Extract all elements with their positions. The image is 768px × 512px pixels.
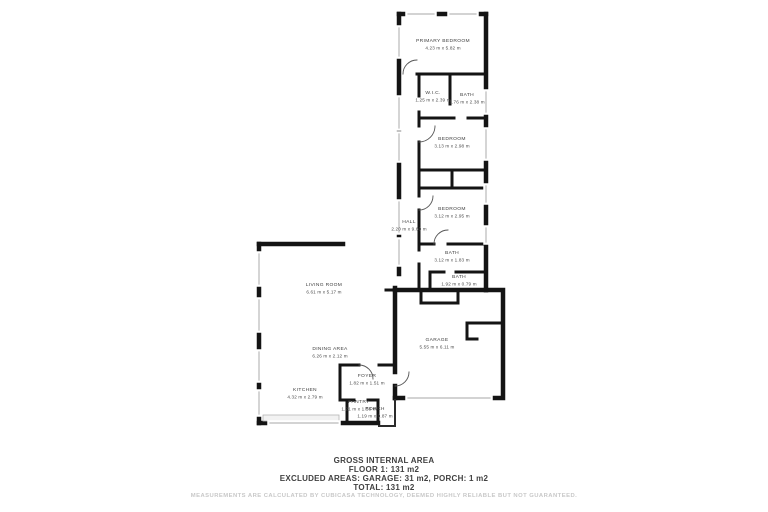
room-dims: 1.19 m x 0.87 m: [357, 413, 392, 420]
room-name: BATH: [449, 92, 484, 99]
room-label-bedroom-2: BEDROOM 3.12 m x 2.95 m: [434, 206, 469, 220]
room-name: BATH: [441, 274, 476, 281]
floorplan-canvas: PRIMARY BEDROOM 4.23 m x 5.82 m W.I.C. 1…: [0, 0, 768, 512]
room-label-living-room: LIVING ROOM 6.61 m x 5.17 m: [306, 282, 342, 296]
room-label-bath-small: BATH 1.92 m x 0.79 m: [441, 274, 476, 288]
room-label-hall: HALL 2.20 m x 9.60 m: [391, 219, 426, 233]
room-name: BEDROOM: [434, 206, 469, 213]
room-label-bath-upper: BATH 1.76 m x 2.38 m: [449, 92, 484, 106]
room-label-porch: PORCH 1.19 m x 0.87 m: [357, 406, 392, 420]
room-name: HALL: [391, 219, 426, 226]
room-name: PRIMARY BEDROOM: [416, 38, 470, 45]
room-dims: 3.12 m x 1.83 m: [434, 257, 469, 264]
room-label-bedroom-1: BEDROOM 3.13 m x 2.98 m: [434, 136, 469, 150]
room-name: KITCHEN: [287, 387, 322, 394]
room-dims: 1.76 m x 2.38 m: [449, 99, 484, 106]
room-label-garage: GARAGE 5.55 m x 6.11 m: [419, 337, 454, 351]
room-label-foyer: FOYER 1.82 m x 1.51 m: [349, 373, 384, 387]
room-name: BATH: [434, 250, 469, 257]
room-name: PORCH: [357, 406, 392, 413]
room-name: LIVING ROOM: [306, 282, 342, 289]
room-dims: 6.26 m x 2.12 m: [312, 353, 347, 360]
room-dims: 1.25 m x 2.39 m: [415, 97, 450, 104]
kitchen-counter: [263, 415, 339, 421]
room-dims: 5.55 m x 6.11 m: [419, 344, 454, 351]
room-dims: 4.23 m x 5.82 m: [416, 45, 470, 52]
area-summary: GROSS INTERNAL AREA FLOOR 1: 131 m2 EXCL…: [0, 456, 768, 492]
room-dims: 1.92 m x 0.79 m: [441, 281, 476, 288]
room-name: FOYER: [349, 373, 384, 380]
room-dims: 3.13 m x 2.98 m: [434, 143, 469, 150]
interior-walls: [340, 74, 503, 423]
summary-floor: FLOOR 1: 131 m2: [0, 465, 768, 474]
summary-total: TOTAL: 131 m2: [0, 483, 768, 492]
room-label-kitchen: KITCHEN 4.32 m x 2.79 m: [287, 387, 322, 401]
room-name: BEDROOM: [434, 136, 469, 143]
room-dims: 1.82 m x 1.51 m: [349, 380, 384, 387]
room-name: GARAGE: [419, 337, 454, 344]
room-label-wic: W.I.C. 1.25 m x 2.39 m: [415, 90, 450, 104]
summary-excluded: EXCLUDED AREAS: GARAGE: 31 m2, PORCH: 1 …: [0, 474, 768, 483]
room-dims: 2.20 m x 9.60 m: [391, 226, 426, 233]
room-name: W.I.C.: [415, 90, 450, 97]
room-dims: 4.32 m x 2.79 m: [287, 394, 322, 401]
room-label-dining-area: DINING AREA 6.26 m x 2.12 m: [312, 346, 347, 360]
floorplan-walls: [0, 0, 768, 512]
measurement-disclaimer: MEASUREMENTS ARE CALCULATED BY CUBICASA …: [8, 493, 761, 499]
room-label-bath-middle: BATH 3.12 m x 1.83 m: [434, 250, 469, 264]
room-label-primary-bedroom: PRIMARY BEDROOM 4.23 m x 5.82 m: [416, 38, 470, 52]
room-name: DINING AREA: [312, 346, 347, 353]
room-dims: 6.61 m x 5.17 m: [306, 289, 342, 296]
room-dims: 3.12 m x 2.95 m: [434, 213, 469, 220]
summary-title: GROSS INTERNAL AREA: [0, 456, 768, 465]
